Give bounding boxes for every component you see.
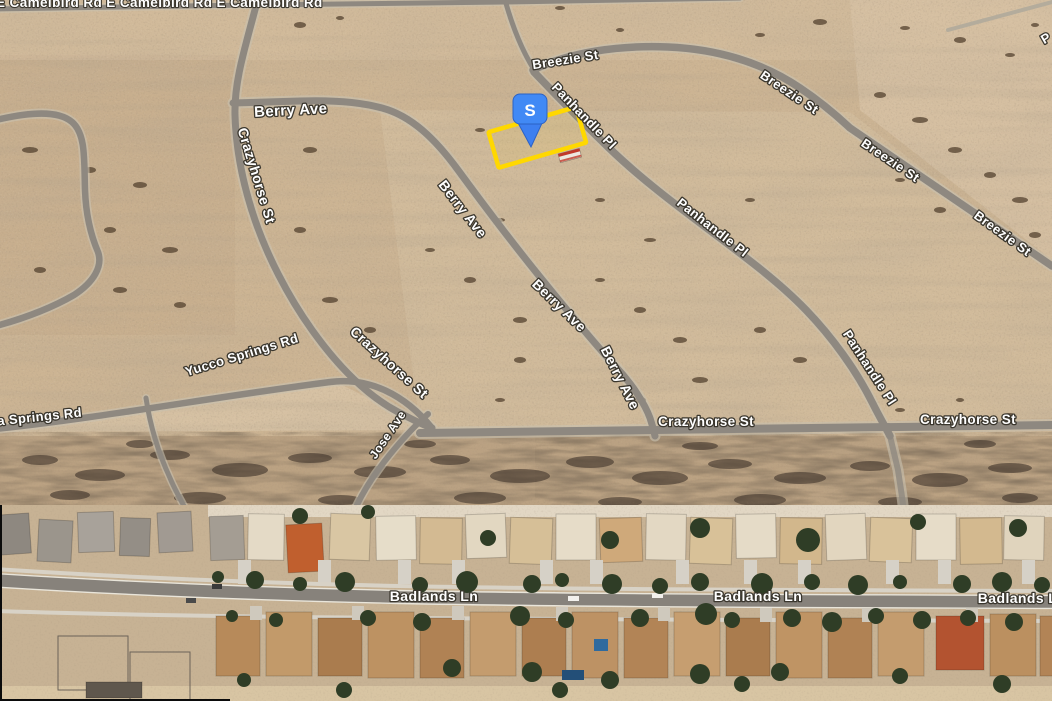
road-label-camelbird: E Camelbird Rd E Camelbird Rd E Camelbir…	[0, 0, 323, 10]
road-label-badlands-2: Badlands Ln	[714, 588, 802, 604]
road-label-badlands-3: Badlands Ln	[978, 590, 1052, 606]
neighborhood	[0, 505, 1052, 701]
satellite-map-svg: S E Camelbird Rd E Camelbird Rd E Camelb…	[0, 0, 1052, 701]
road-label-crazyhorse-h1: Crazyhorse St	[658, 414, 754, 429]
road-label-badlands-1: Badlands Ln	[390, 588, 478, 604]
marker-letter: S	[524, 101, 535, 120]
road-label-crazyhorse-h2: Crazyhorse St	[920, 412, 1016, 427]
satellite-map-canvas[interactable]: S E Camelbird Rd E Camelbird Rd E Camelb…	[0, 0, 1052, 701]
